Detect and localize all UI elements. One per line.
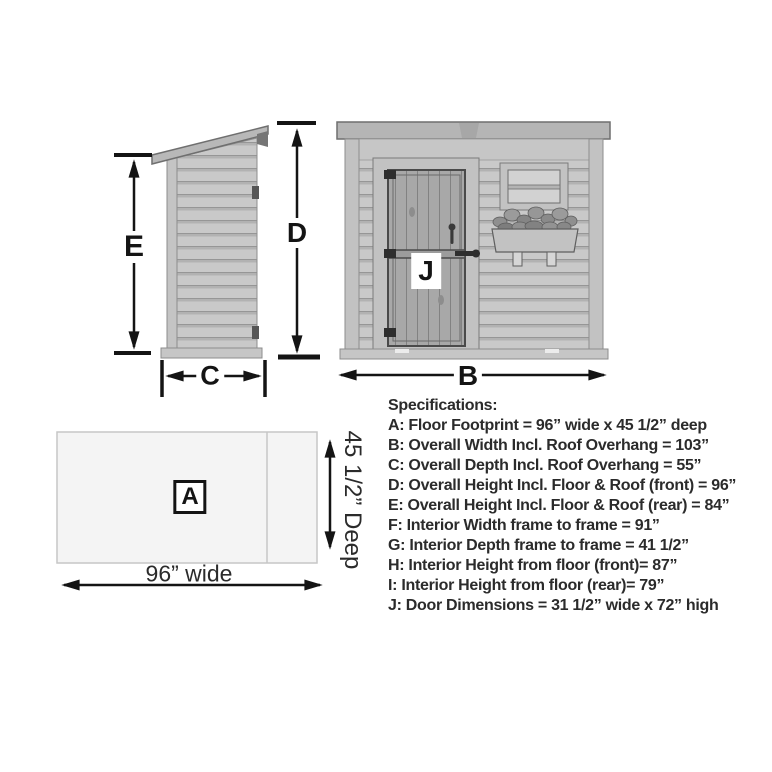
shed-spec-sheet: E D C B J A 96” wide 45 1/2” Deep Specif… [0, 0, 772, 772]
door-hinge-top [384, 170, 396, 179]
spec-item-j: J: Door Dimensions = 31 1/2” wide x 72” … [388, 596, 736, 616]
spec-item-b: B: Overall Width Incl. Roof Overhang = 1… [388, 436, 736, 456]
front-roof-seam [459, 123, 479, 138]
dim-label-a: A [173, 480, 206, 514]
spec-item-i: I: Interior Height from floor (rear)= 79… [388, 576, 736, 596]
spec-item-g: G: Interior Depth frame to frame = 41 1/… [388, 536, 736, 556]
flower-box-bracket-right [547, 252, 556, 266]
shed-diagram-artwork [0, 0, 772, 772]
floor-width-label: 96” wide [146, 561, 233, 588]
front-base [340, 349, 608, 359]
front-base-notch-left [395, 349, 409, 353]
flower-box [492, 229, 578, 252]
spec-item-f: F: Interior Width frame to frame = 91” [388, 516, 736, 536]
dim-label-j: J [411, 253, 441, 289]
side-view-elevation [152, 126, 268, 358]
spec-item-a: A: Floor Footprint = 96” wide x 45 1/2” … [388, 416, 736, 436]
side-corner-trim [167, 158, 177, 349]
floor-depth-label: 45 1/2” Deep [338, 431, 366, 570]
dim-label-e: E [120, 231, 148, 263]
door-hinge-bottom [384, 328, 396, 337]
side-hinge-upper [252, 186, 259, 199]
dim-label-c: C [196, 362, 224, 391]
spec-item-d: D: Overall Height Incl. Floor & Roof (fr… [388, 476, 736, 496]
front-frieze-board [345, 139, 603, 160]
side-hinge-lower [252, 326, 259, 339]
spec-item-h: H: Interior Height from floor (front)= 8… [388, 556, 736, 576]
flower-box-bracket-left [513, 252, 522, 266]
door-hinge-middle [384, 249, 396, 258]
door-latch-knob [472, 250, 480, 258]
side-base [161, 348, 262, 358]
front-view-elevation [337, 122, 610, 359]
dim-label-b: B [454, 361, 482, 391]
door-wood-knot [438, 295, 444, 305]
front-corner-trim-right [589, 139, 603, 349]
specifications-title: Specifications: [388, 396, 736, 416]
spec-item-c: C: Overall Depth Incl. Roof Overhang = 5… [388, 456, 736, 476]
dim-label-d: D [283, 218, 311, 248]
spec-item-e: E: Overall Height Incl. Floor & Roof (re… [388, 496, 736, 516]
door-wood-knot [409, 207, 415, 217]
specifications-block: Specifications: A: Floor Footprint = 96”… [388, 396, 736, 616]
front-corner-trim-left [345, 139, 359, 349]
window-sash-divider [508, 185, 560, 189]
front-base-notch-right [545, 349, 559, 353]
side-wall [167, 138, 257, 348]
door-handle-plate [451, 229, 454, 244]
